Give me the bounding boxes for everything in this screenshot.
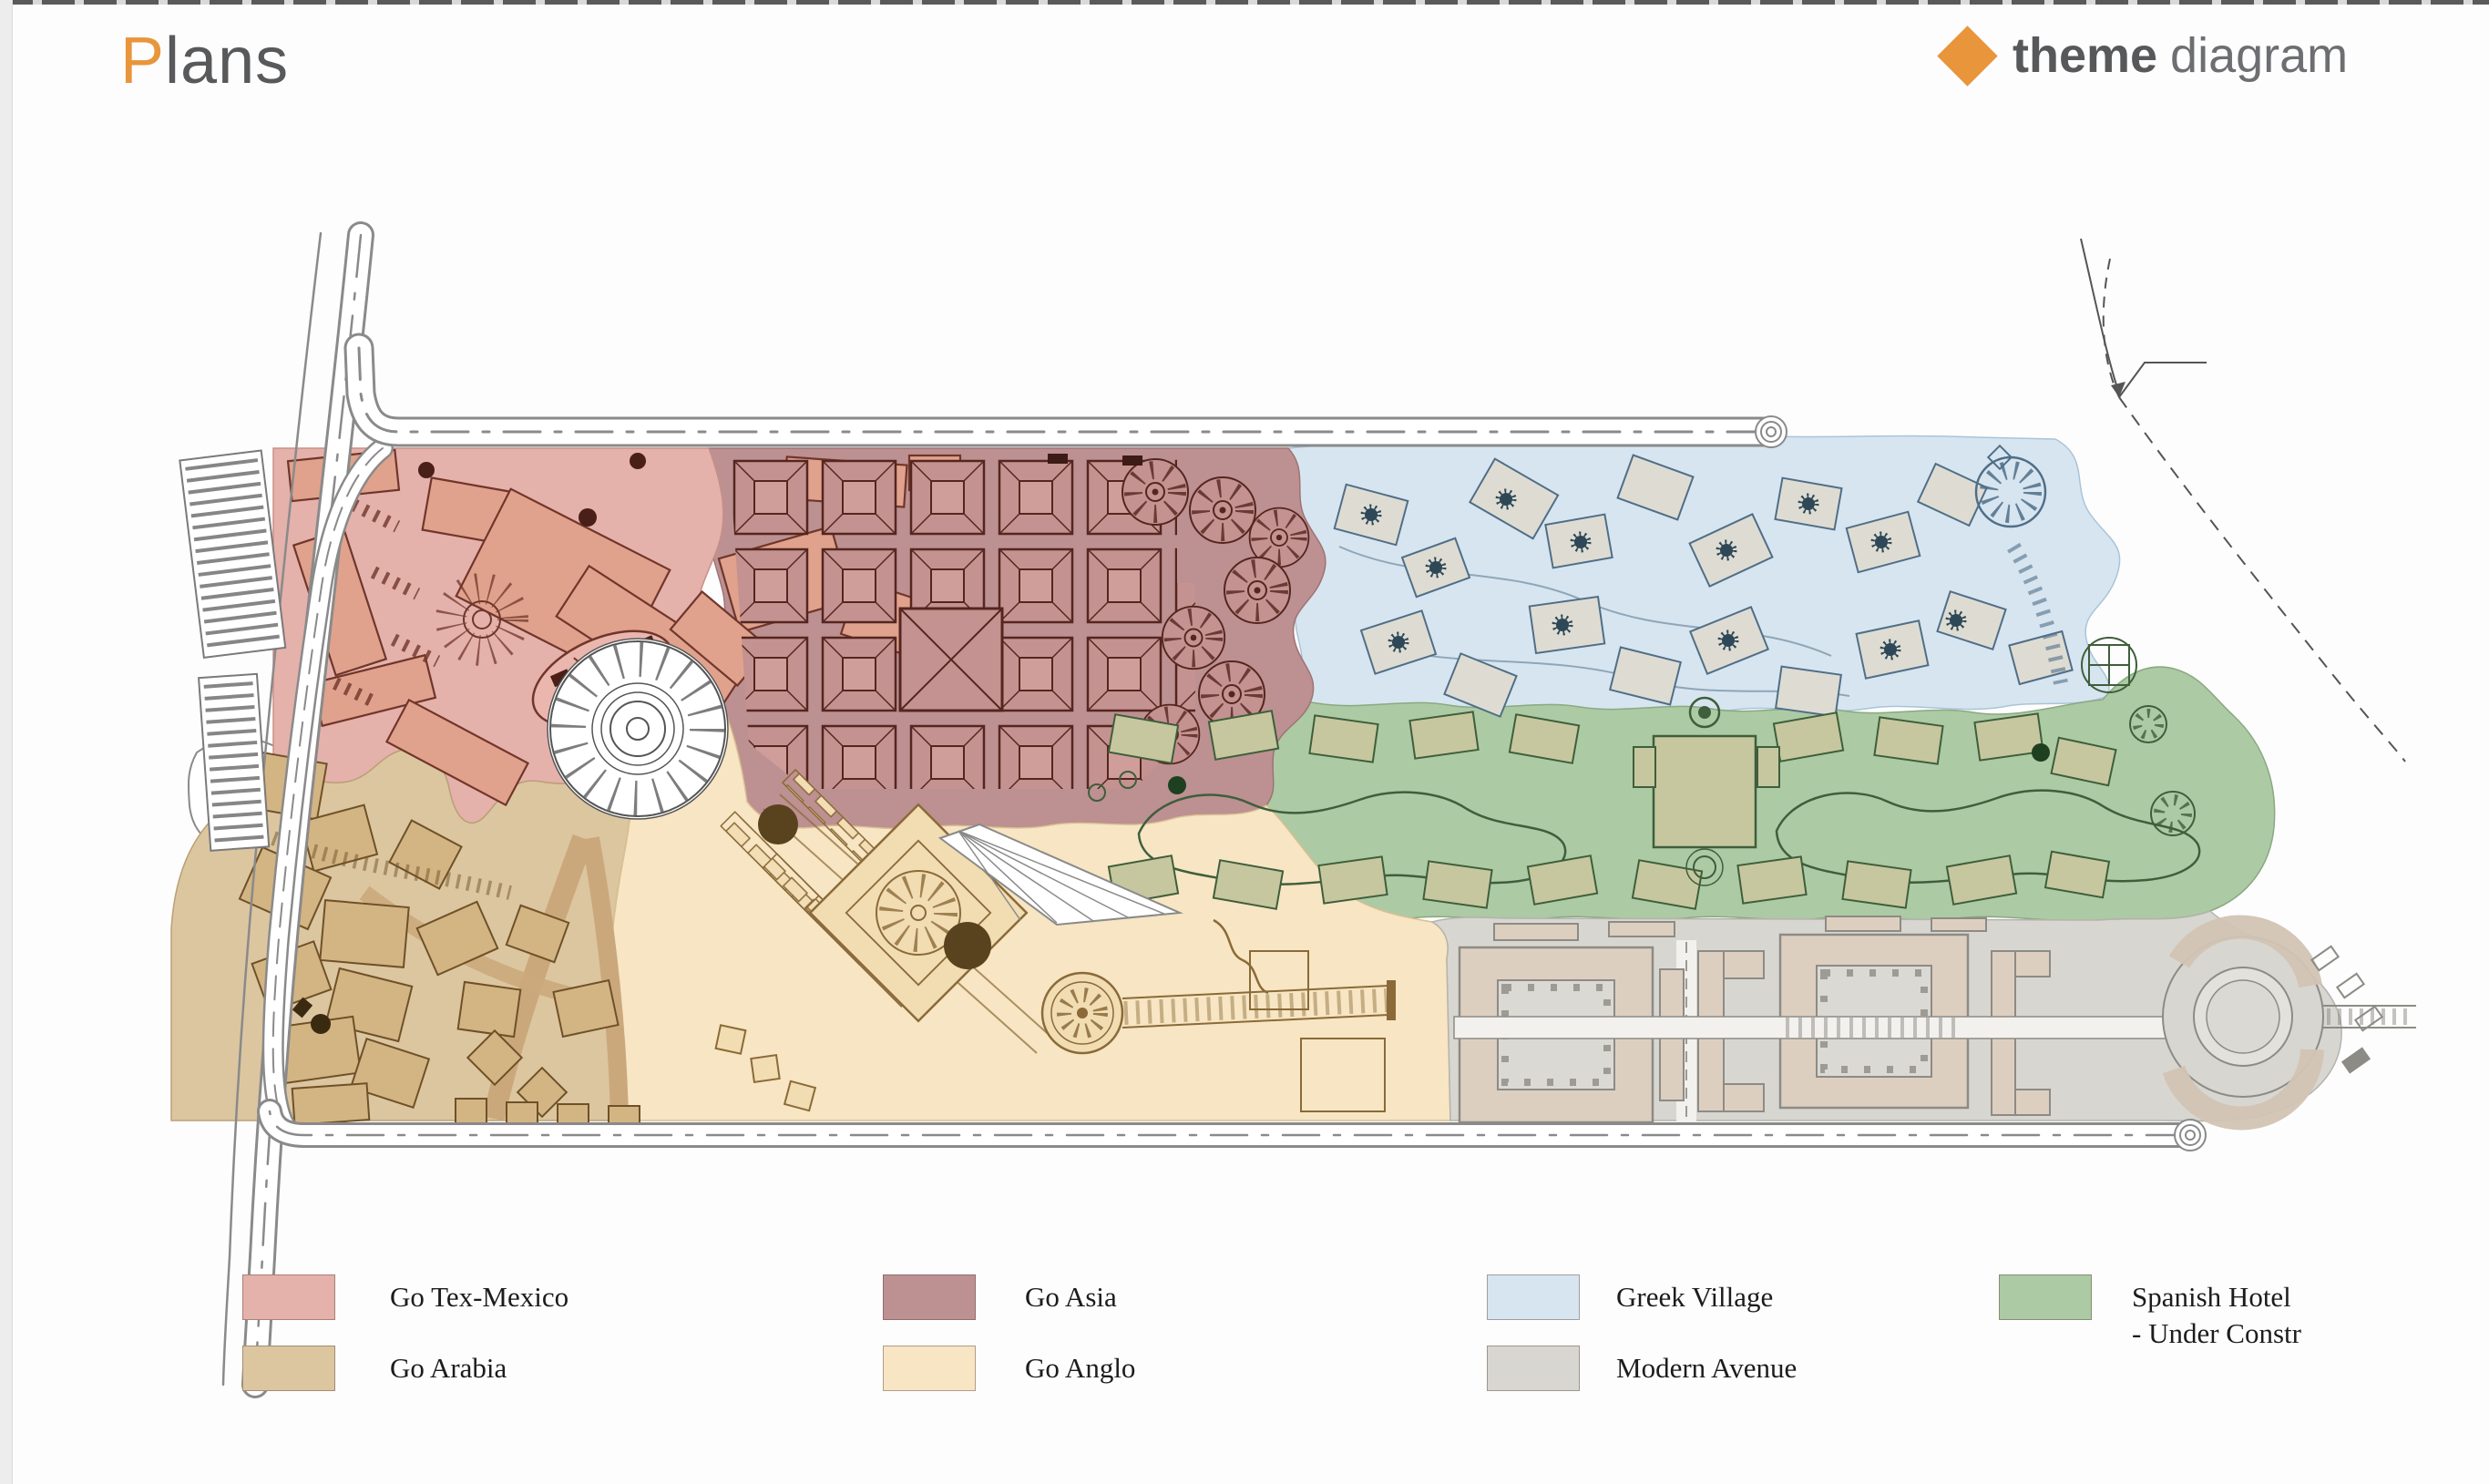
- anglo-tree-circle: [758, 804, 798, 844]
- arabia-mosque-dot: [311, 1014, 331, 1034]
- annotation-leader-line: [2119, 363, 2207, 397]
- legend-label: Go Anglo: [1025, 1352, 1135, 1385]
- legend-swatch-go-arabia: [242, 1346, 335, 1391]
- legend-swatch-go-asia: [883, 1274, 976, 1320]
- legend-label: Go Arabia: [390, 1352, 507, 1385]
- legend-label: Greek Village: [1616, 1281, 1773, 1314]
- legend-swatch-modern-avenue: [1487, 1346, 1580, 1391]
- legend-swatch-greek-village: [1487, 1274, 1580, 1320]
- road-spiral-end: [2175, 1120, 2206, 1151]
- anglo-tree-circle: [944, 922, 991, 969]
- annotation-arrowhead-icon: [2111, 382, 2125, 397]
- legend-label: Spanish Hotel: [2132, 1281, 2291, 1314]
- road-north: [359, 348, 1787, 447]
- anglo-roundabout: [1042, 973, 1122, 1053]
- modern-central-axis: [1454, 1017, 2183, 1039]
- legend-label: Modern Avenue: [1616, 1352, 1797, 1385]
- legend-label: Go Asia: [1025, 1281, 1117, 1314]
- legend-label-line2: - Under Constr: [2132, 1317, 2301, 1350]
- site-plan-map: [0, 0, 2489, 1484]
- road-spiral-end: [1756, 416, 1787, 447]
- legend-label: Go Tex-Mexico: [390, 1281, 568, 1314]
- asia-center-pavilion: [900, 609, 1002, 711]
- modern-circle-plaza: [2163, 927, 2323, 1119]
- central-amphitheater: [548, 639, 728, 819]
- plans-page: Plans theme diagram: [0, 0, 2489, 1484]
- legend-swatch-go-anglo: [883, 1346, 976, 1391]
- legend-swatch-spanish-hotel: [1999, 1274, 2092, 1320]
- legend-swatch-go-tex-mexico: [242, 1274, 335, 1320]
